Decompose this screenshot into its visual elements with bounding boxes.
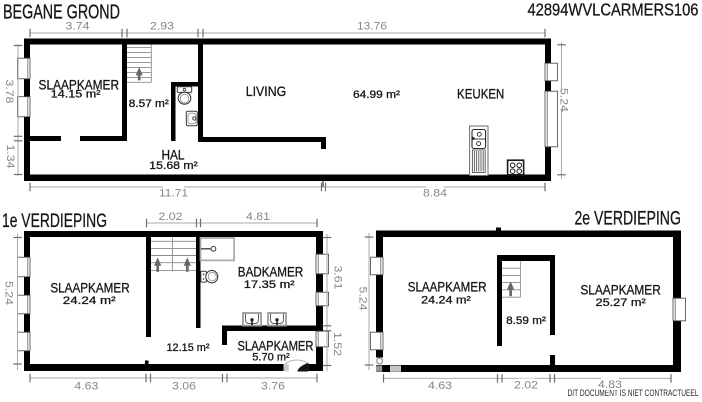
svg-text:64.99 m²: 64.99 m² (353, 89, 400, 101)
svg-text:3.61: 3.61 (332, 266, 344, 290)
svg-text:4.83: 4.83 (598, 379, 622, 391)
svg-text:1.34: 1.34 (4, 145, 16, 169)
svg-text:11.71: 11.71 (159, 188, 188, 200)
svg-text:5.70 m²: 5.70 m² (252, 352, 290, 364)
svg-text:5.24: 5.24 (357, 287, 369, 311)
svg-text:14.15 m²: 14.15 m² (51, 88, 101, 100)
svg-text:3.06: 3.06 (172, 381, 196, 393)
svg-text:2.02: 2.02 (514, 380, 538, 392)
svg-text:4.81: 4.81 (246, 211, 270, 223)
svg-text:SLAAPKAMER: SLAAPKAMER (50, 280, 129, 296)
svg-text:LIVING: LIVING (246, 83, 287, 99)
svg-text:4.63: 4.63 (428, 380, 452, 392)
svg-text:SLAAPKAMER: SLAAPKAMER (408, 279, 487, 295)
svg-text:5.24: 5.24 (3, 281, 15, 305)
svg-text:12.15 m²: 12.15 m² (167, 342, 210, 354)
svg-text:17.35 m²: 17.35 m² (244, 279, 295, 291)
svg-text:3.74: 3.74 (66, 21, 90, 33)
svg-text:BADKAMER: BADKAMER (238, 264, 303, 280)
svg-text:4.63: 4.63 (74, 381, 98, 393)
svg-text:DIT DOCUMENT IS NIET CONTRACTU: DIT DOCUMENT IS NIET CONTRACTUEEL (568, 388, 699, 398)
svg-text:KEUKEN: KEUKEN (457, 86, 504, 102)
svg-text:BEGANE GROND: BEGANE GROND (3, 0, 120, 23)
svg-text:8.84: 8.84 (423, 188, 447, 200)
svg-text:42894WVLCARMERS106: 42894WVLCARMERS106 (528, 0, 699, 20)
svg-text:15.68 m²: 15.68 m² (149, 160, 198, 172)
svg-text:2.93: 2.93 (150, 21, 174, 33)
svg-text:8.59 m²: 8.59 m² (506, 315, 546, 327)
svg-text:1e VERDIEPING: 1e VERDIEPING (2, 210, 107, 232)
svg-text:1.52: 1.52 (331, 332, 343, 356)
svg-text:5.24: 5.24 (558, 88, 570, 112)
svg-text:24.24 m²: 24.24 m² (63, 295, 116, 307)
svg-text:3.78: 3.78 (3, 80, 15, 104)
svg-text:2.02: 2.02 (159, 211, 183, 223)
svg-text:25.27 m²: 25.27 m² (596, 297, 647, 309)
svg-text:3.76: 3.76 (261, 381, 285, 393)
svg-text:2e VERDIEPING: 2e VERDIEPING (574, 208, 681, 230)
svg-text:SLAAPKAMER: SLAAPKAMER (580, 282, 660, 298)
svg-text:13.76: 13.76 (357, 21, 387, 33)
svg-text:24.24 m²: 24.24 m² (421, 295, 471, 307)
svg-text:8.57 m²: 8.57 m² (129, 98, 169, 110)
